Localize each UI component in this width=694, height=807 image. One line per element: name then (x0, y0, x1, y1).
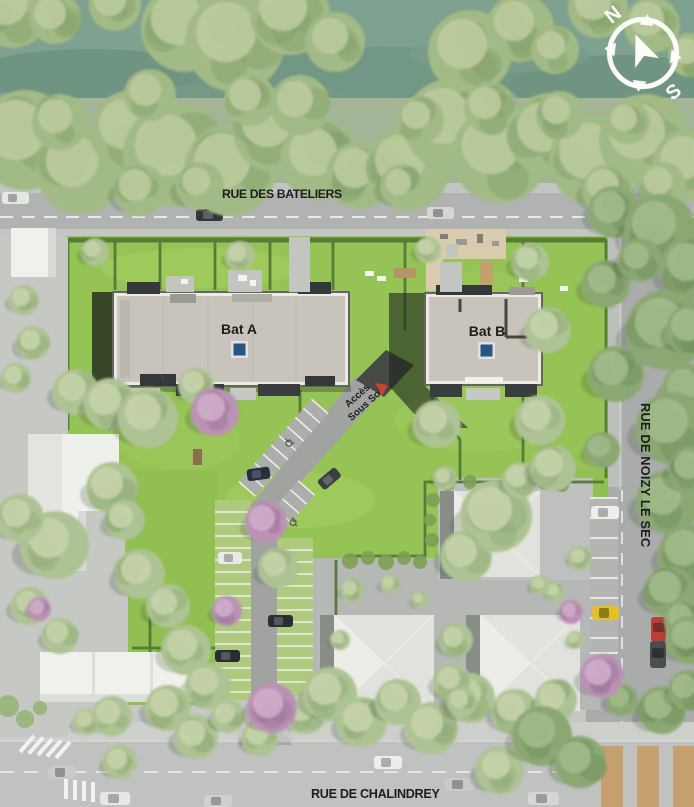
svg-text:Bat B: Bat B (469, 323, 506, 339)
svg-text:Bat A: Bat A (221, 321, 257, 337)
svg-text:RUE DE NOIZY LE SEC: RUE DE NOIZY LE SEC (638, 403, 653, 547)
svg-text:RUE DES BATELIERS: RUE DES BATELIERS (222, 187, 342, 201)
svg-text:RUE DE CHALINDREY: RUE DE CHALINDREY (311, 787, 440, 801)
